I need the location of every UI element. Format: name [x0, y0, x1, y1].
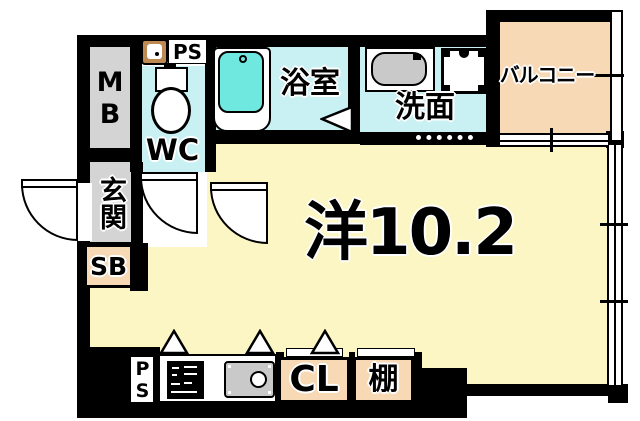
stove-icon	[167, 361, 204, 399]
entrance-door-swing-icon	[21, 184, 78, 241]
entrance-door-leaf	[21, 179, 78, 188]
closet-box: CL	[278, 357, 350, 403]
shoe-box-label: SB	[90, 254, 127, 279]
wall-corner-bottom-right	[608, 384, 628, 403]
vanity-sink-icon	[365, 47, 435, 92]
kitchen-sink-icon	[224, 361, 275, 398]
washroom-opening-dotted	[416, 135, 473, 140]
shelf-track	[357, 348, 415, 357]
washroom-label: 洗面	[385, 90, 465, 126]
pipe-space-top-box: PS	[168, 39, 207, 64]
meter-box-label: MB	[90, 52, 130, 146]
bath-door-icon	[320, 105, 354, 134]
shelf-box: 棚	[353, 357, 414, 403]
balcony-label: バルコニー	[495, 62, 599, 88]
pipe-space-bottom-box: PS	[130, 356, 154, 403]
opening-triangle-icon-2	[245, 329, 275, 355]
opening-triangle-icon-1	[159, 329, 189, 355]
wall-balcony-top	[486, 10, 612, 22]
window-tick-1	[600, 223, 628, 226]
washing-machine-icon	[441, 48, 487, 94]
main-window-right	[607, 145, 623, 385]
closet-label: CL	[289, 362, 338, 398]
toilet-door-leaf	[140, 172, 198, 181]
faucet-icon	[239, 55, 247, 63]
window-tick-2	[600, 300, 628, 303]
toilet-icon	[151, 63, 193, 135]
toilet-label: WC	[140, 131, 205, 169]
main-room-label: 洋10.2	[265, 190, 555, 275]
balcony-window	[500, 133, 608, 147]
balcony-window-tick	[550, 128, 553, 152]
bathroom-label: 浴室	[271, 66, 349, 102]
pipe-space-top-label: PS	[173, 42, 202, 62]
wall-mb-entrance	[90, 148, 133, 162]
hand-basin-icon	[141, 39, 168, 65]
shelf-label: 棚	[369, 365, 399, 395]
shoe-box: SB	[84, 244, 133, 288]
bathtub-icon	[213, 47, 271, 132]
floor-plan: CL 棚 PS SB MB PS WC 浴室 洗面 バルコニー 玄関	[0, 0, 640, 421]
entrance-label: 玄関	[90, 163, 131, 242]
wall-bottom-right	[455, 384, 628, 396]
pipe-space-bottom-label: PS	[133, 358, 152, 402]
opening-triangle-icon-3	[310, 329, 340, 355]
room-door-leaf	[210, 182, 268, 191]
